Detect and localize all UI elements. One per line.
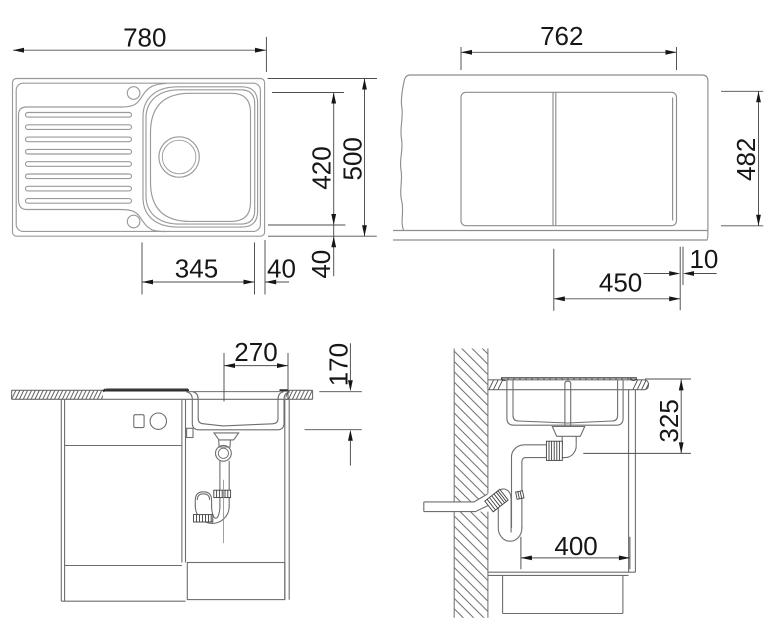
svg-text:345: 345 <box>175 254 218 284</box>
svg-text:450: 450 <box>599 268 642 298</box>
svg-text:170: 170 <box>323 343 353 386</box>
svg-text:420: 420 <box>307 146 337 189</box>
svg-text:270: 270 <box>234 337 277 367</box>
svg-text:400: 400 <box>554 531 597 561</box>
svg-text:482: 482 <box>731 138 761 181</box>
svg-text:500: 500 <box>338 137 368 180</box>
svg-text:40: 40 <box>306 250 336 279</box>
svg-text:40: 40 <box>267 254 296 284</box>
svg-text:325: 325 <box>654 399 684 442</box>
svg-text:10: 10 <box>689 244 718 274</box>
svg-text:780: 780 <box>123 23 166 53</box>
svg-text:762: 762 <box>540 21 583 51</box>
